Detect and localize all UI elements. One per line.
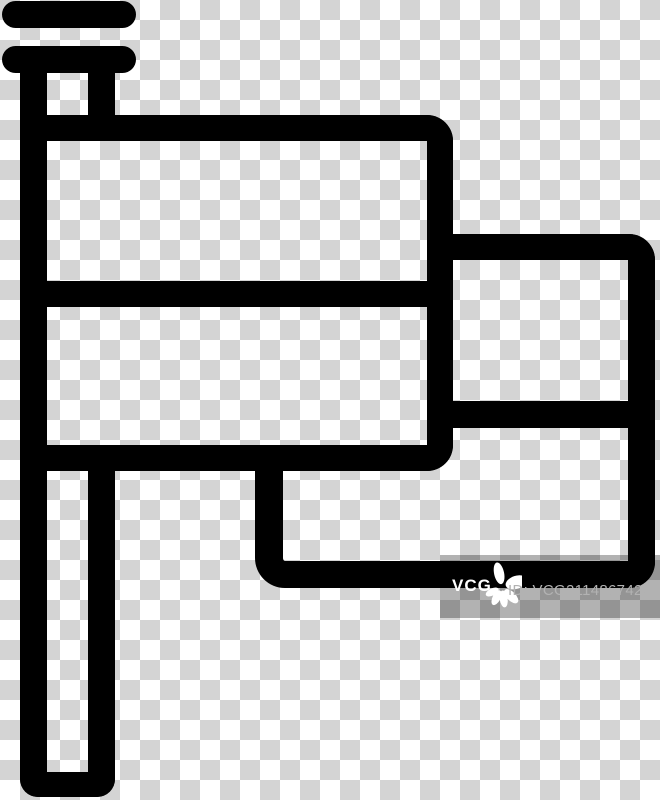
watermark-id-text: ID: VCG211486742211 [508,583,660,598]
pole-right-edge-lower [88,445,115,753]
transparency-checkerboard: VCG ID: VCG211486742211 [0,0,660,800]
flag-fold-stripe-divider [427,401,642,428]
flag-main-stripe-divider [20,281,440,307]
pole-base [20,740,115,797]
flag-fold-left-edge [255,445,440,588]
pole-cap-top-bar [2,1,136,28]
vcg-watermark: VCG ID: VCG211486742211 [440,555,660,618]
pole-cap-lower-bar [2,46,136,73]
